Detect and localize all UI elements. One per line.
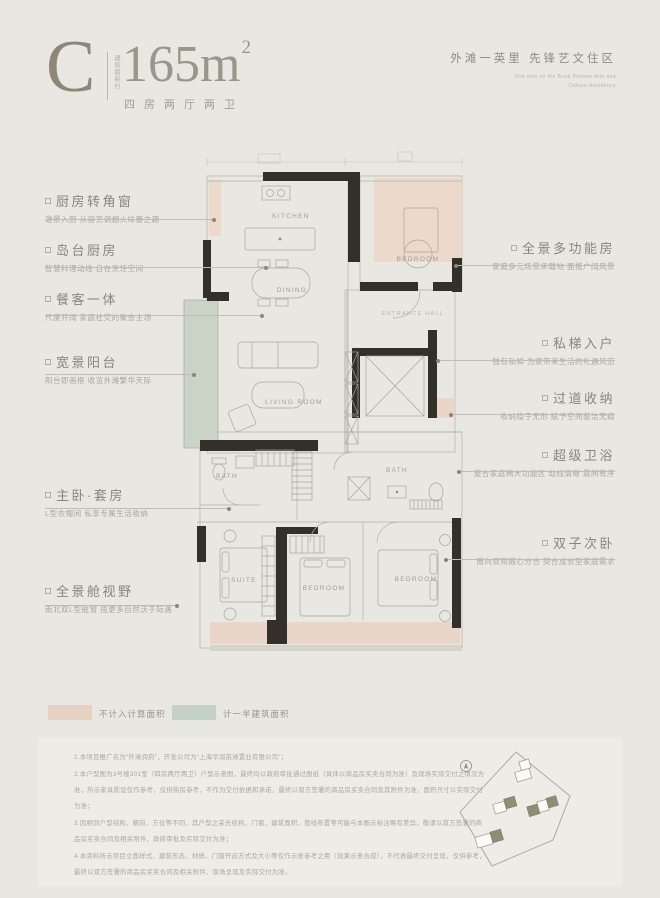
- callout-private-elevator: 私梯入户 独有私梯 为家带来生活的礼遇风范: [492, 333, 615, 367]
- callout-sub: 收纳隐于无形 赋予空间整洁无痕: [500, 411, 615, 422]
- site-plan: [454, 744, 614, 879]
- callout-wide-balcony: 宽景阳台 阳台即画框 收览外滩繁华天际: [45, 352, 152, 386]
- leader-line: [45, 315, 263, 316]
- callout-master-suite: 主卧·套房 L型衣帽间 私享专属生活收纳: [45, 485, 148, 519]
- leader-line: [45, 219, 215, 220]
- callout-bullet: [542, 540, 548, 546]
- callout-bullet: [542, 340, 548, 346]
- callout-super-bathroom: 超级卫浴 整合家庭两大功能区 动线清晰 晨间有序: [474, 445, 615, 479]
- legend-label-half-counted: 计一半建筑面积: [223, 708, 290, 720]
- room-label-bedroom-mid: BEDROOM: [303, 585, 346, 592]
- room-label-entrance: ENTRANCE HALL: [382, 311, 444, 317]
- area-vertical-label: 建筑面积约: [112, 55, 121, 90]
- room-label-bath-right: BATH: [386, 467, 408, 474]
- room-label-bath-left: BATH: [216, 473, 238, 480]
- callout-bullet: [45, 588, 51, 594]
- room-label-suite: SUITE: [231, 577, 257, 584]
- disclaimer-item: 3.因相邻户型结构、朝向、方位等不同，其户型之采光结构、门窗、建筑面积、管线布置…: [74, 816, 486, 848]
- leader-line: [458, 471, 615, 472]
- callout-title: 主卧·套房: [56, 488, 125, 503]
- layout-description: 四房两厅两卫: [124, 96, 244, 112]
- unit-type-letter: C: [46, 30, 95, 104]
- callout-bullet: [45, 296, 51, 302]
- leader-line: [45, 267, 267, 268]
- legend-swatch-not-counted: [48, 705, 92, 720]
- area-value: 165m2: [122, 38, 251, 91]
- callout-sub: 独有私梯 为家带来生活的礼遇风范: [492, 356, 615, 367]
- leader-line: [45, 605, 178, 606]
- legend-label-not-counted: 不计入计算面积: [99, 708, 166, 720]
- leader-line: [445, 559, 615, 560]
- callout-title: 超级卫浴: [553, 448, 615, 463]
- callout-title: 过道收纳: [553, 391, 615, 406]
- project-name: 外滩一英里 先锋艺文住区: [450, 50, 616, 66]
- area-number: 165m: [122, 36, 240, 93]
- callout-sub: 阳台即画框 收览外滩繁华天际: [45, 375, 152, 386]
- callout-bullet: [45, 359, 51, 365]
- callout-title: 厨房转角窗: [56, 194, 134, 209]
- callout-title: 岛台厨房: [56, 243, 118, 258]
- area-sup: 2: [241, 37, 251, 58]
- callout-bullet: [45, 247, 51, 253]
- room-label-dining: DINING: [277, 287, 308, 294]
- project-block: 外滩一英里 先锋艺文住区 One mile on the Bund Pionee…: [450, 50, 616, 90]
- callout-bullet: [45, 198, 51, 204]
- callout-sub: 家庭多元场景承载地 面揽广阔风景: [492, 261, 615, 272]
- project-en-line1: One mile on the Bund Pioneer Arts and: [514, 74, 616, 80]
- callout-sub: 南向双阳随心分合 契合成长型家庭需求: [476, 556, 615, 567]
- callout-bullet: [542, 452, 548, 458]
- callout-bullet: [542, 395, 548, 401]
- callout-title: 双子次卧: [553, 536, 615, 551]
- callout-sub: 智慧料理动线 自在烹饪空间: [45, 263, 144, 274]
- callout-sub: L型衣帽间 私享专属生活收纳: [45, 508, 148, 519]
- leader-line: [45, 374, 195, 375]
- callout-title: 私梯入户: [553, 336, 615, 351]
- callout-panoramic-view: 全景舱视野 南北双L型舷窗 揽更多自然沃于际遇: [45, 581, 172, 615]
- leader-line: [455, 265, 615, 266]
- callout-sub: 整合家庭两大功能区 动线清晰 晨间有序: [474, 468, 615, 479]
- callout-title: 餐客一体: [56, 292, 118, 307]
- disclaimer-item: 1.本项目推广名为“外滩润府”，开发公司为“上海华润前滩置业有限公司”；: [74, 750, 486, 766]
- room-label-bedroom-right: BEDROOM: [395, 576, 438, 583]
- floorplan-drawing: KITCHEN DINING LIVING ROOM BEDROOM ENTRA…: [168, 148, 480, 668]
- callout-bullet: [511, 245, 517, 251]
- callout-title: 全景多功能房: [522, 241, 615, 256]
- callout-title: 宽景阳台: [56, 355, 118, 370]
- callout-title: 全景舱视野: [56, 584, 134, 599]
- disclaimer-box: 1.本项目推广名为“外滩润府”，开发公司为“上海华润前滩置业有限公司”； 2.本…: [38, 738, 622, 886]
- room-label-living: LIVING ROOM: [265, 399, 323, 406]
- leader-line: [45, 508, 230, 509]
- room-label-bedroom-top: BEDROOM: [397, 256, 440, 263]
- callout-twin-bedrooms: 双子次卧 南向双阳随心分合 契合成长型家庭需求: [476, 533, 615, 567]
- room-label-kitchen: KITCHEN: [272, 213, 310, 220]
- header-divider: [107, 52, 108, 100]
- leader-line: [437, 360, 615, 361]
- callout-sub: 尺度开阔 家庭社交的聚会主场: [45, 312, 152, 323]
- callout-island-kitchen: 岛台厨房 智慧料理动线 自在烹饪空间: [45, 240, 144, 274]
- callout-multifunction-room: 全景多功能房 家庭多元场景承载地 面揽广阔风景: [492, 238, 615, 272]
- project-name-en: One mile on the Bund Pioneer Arts and Cu…: [450, 73, 616, 90]
- callout-bullet: [45, 492, 51, 498]
- legend-swatch-half-counted: [172, 705, 216, 720]
- project-en-line2: Culture Residency: [568, 83, 616, 89]
- disclaimer-text: 1.本项目推广名为“外滩润府”，开发公司为“上海华润前滩置业有限公司”； 2.本…: [74, 750, 486, 882]
- leader-line: [450, 414, 615, 415]
- callout-corridor-storage: 过道收纳 收纳隐于无形 赋予空间整洁无痕: [500, 388, 615, 422]
- callout-dining-living-combined: 餐客一体 尺度开阔 家庭社交的聚会主场: [45, 289, 152, 323]
- disclaimer-item: 4.本资料所示项目立面样式、建筑形态、材质、门窗开启方式及大小等仅作示意参考之用…: [74, 849, 486, 881]
- floorplan-page: C 建筑面积约 165m2 四房两厅两卫 外滩一英里 先锋艺文住区 One mi…: [0, 0, 660, 898]
- disclaimer-item: 2.本户型图为3号楼301室（四房两厅两卫）户型示意图，最终均以政府审批通过图纸…: [74, 767, 486, 815]
